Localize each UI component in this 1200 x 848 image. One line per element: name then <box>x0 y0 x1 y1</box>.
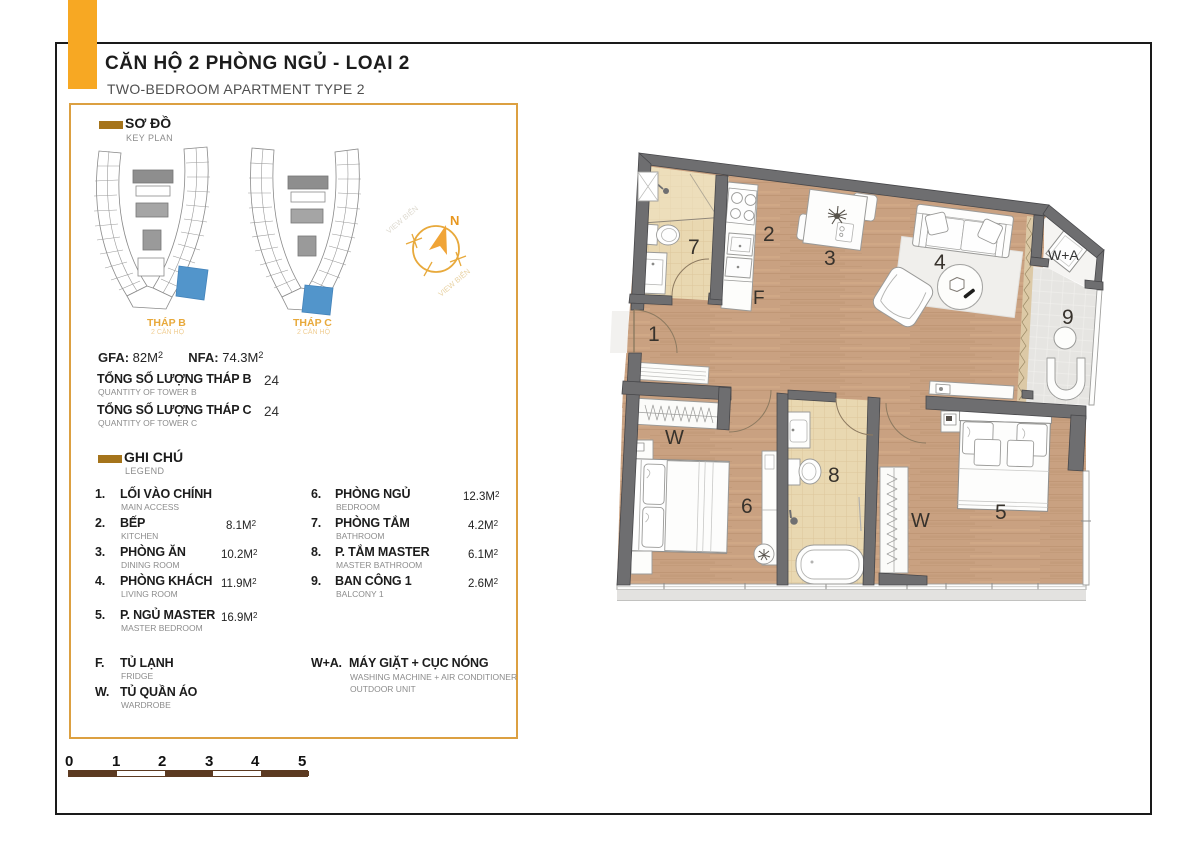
svg-text:2: 2 <box>763 223 775 246</box>
svg-text:3: 3 <box>824 247 836 270</box>
svg-text:F: F <box>753 288 765 309</box>
svg-text:9: 9 <box>1062 306 1074 329</box>
svg-text:W: W <box>665 427 684 449</box>
svg-text:8: 8 <box>828 464 840 487</box>
svg-text:7: 7 <box>688 236 700 259</box>
svg-text:W: W <box>911 510 930 532</box>
svg-text:1: 1 <box>648 323 660 346</box>
svg-text:5: 5 <box>995 501 1007 524</box>
svg-text:N: N <box>450 213 459 228</box>
svg-text:6: 6 <box>741 495 753 518</box>
svg-text:W+A: W+A <box>1048 247 1079 263</box>
svg-text:4: 4 <box>934 251 946 274</box>
svg-text:VIEW BIỂN: VIEW BIỂN <box>385 204 420 236</box>
